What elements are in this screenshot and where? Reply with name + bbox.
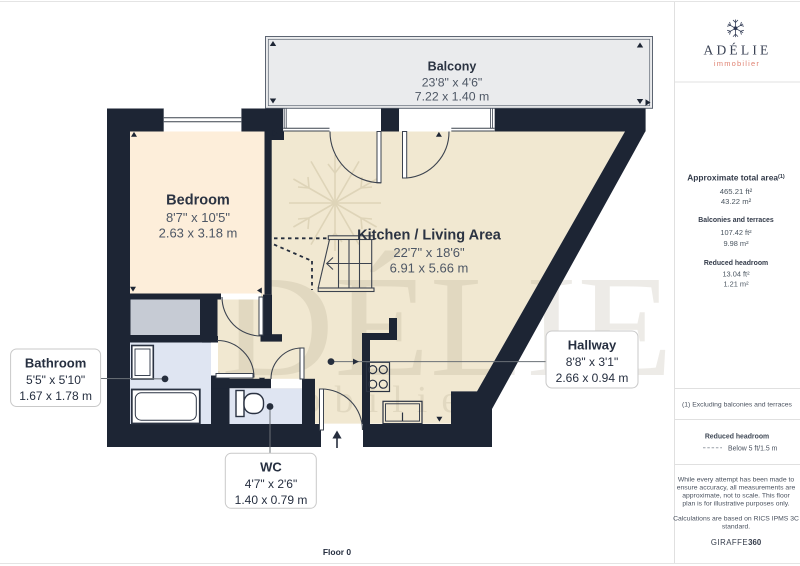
svg-text:43.22 m²: 43.22 m² xyxy=(721,197,752,206)
svg-text:WC: WC xyxy=(260,460,282,475)
svg-text:Reduced headroom: Reduced headroom xyxy=(704,260,768,267)
svg-text:2.63 x 3.18 m: 2.63 x 3.18 m xyxy=(159,226,238,241)
svg-text:standard.: standard. xyxy=(722,524,750,531)
svg-text:Approximate total area(1): Approximate total area(1) xyxy=(687,173,785,183)
svg-text:13.04 ft²: 13.04 ft² xyxy=(722,269,750,278)
svg-text:Hallway: Hallway xyxy=(568,338,617,353)
svg-text:465.21 ft²: 465.21 ft² xyxy=(720,187,753,196)
svg-text:ensure accuracy, all measureme: ensure accuracy, all measurements are xyxy=(677,484,796,491)
svg-text:22'7" x 18'6": 22'7" x 18'6" xyxy=(393,245,465,260)
svg-text:(1) Excluding balconies and te: (1) Excluding balconies and terraces xyxy=(682,402,793,409)
svg-text:Balconies and terraces: Balconies and terraces xyxy=(698,217,774,224)
svg-text:1.67 x 1.78 m: 1.67 x 1.78 m xyxy=(19,389,92,403)
svg-text:Bathroom: Bathroom xyxy=(25,356,86,371)
svg-text:approximate, not to scale. Thi: approximate, not to scale. This floor xyxy=(682,492,790,499)
svg-text:8'8" x 3'1": 8'8" x 3'1" xyxy=(566,355,618,369)
svg-text:23'8" x 4'6": 23'8" x 4'6" xyxy=(422,76,483,90)
svg-text:1.21 m²: 1.21 m² xyxy=(723,280,749,289)
svg-text:8'7" x 10'5": 8'7" x 10'5" xyxy=(166,210,230,225)
svg-text:Balcony: Balcony xyxy=(428,59,477,73)
svg-text:9.98 m²: 9.98 m² xyxy=(723,239,749,248)
svg-text:GIRAFFE360: GIRAFFE360 xyxy=(711,538,762,547)
svg-text:7.22 x 1.40 m: 7.22 x 1.40 m xyxy=(415,90,490,104)
svg-text:Floor 0: Floor 0 xyxy=(323,547,352,557)
svg-text:While every attempt has been m: While every attempt has been made to xyxy=(678,476,795,483)
svg-text:1.40 x 0.79 m: 1.40 x 0.79 m xyxy=(235,493,308,507)
svg-text:2.66 x 0.94 m: 2.66 x 0.94 m xyxy=(556,371,629,385)
svg-text:Bedroom: Bedroom xyxy=(166,193,230,209)
svg-text:Reduced headroom: Reduced headroom xyxy=(705,434,769,441)
svg-text:ADÉLIE: ADÉLIE xyxy=(704,43,772,58)
svg-text:107.42 ft²: 107.42 ft² xyxy=(720,228,752,237)
svg-text:Below 5 ft/1.5 m: Below 5 ft/1.5 m xyxy=(728,445,778,452)
svg-text:Calculations are based on RICS: Calculations are based on RICS IPMS 3C xyxy=(673,516,799,523)
svg-text:6.91 x 5.66 m: 6.91 x 5.66 m xyxy=(390,261,469,276)
svg-text:4'7" x 2'6": 4'7" x 2'6" xyxy=(245,477,297,491)
svg-text:plan is for illustrative purpo: plan is for illustrative purposes only. xyxy=(682,500,789,507)
svg-text:Kitchen / Living Area: Kitchen / Living Area xyxy=(357,228,502,244)
svg-text:immobilier: immobilier xyxy=(714,59,760,68)
svg-text:5'5" x 5'10": 5'5" x 5'10" xyxy=(26,373,85,387)
